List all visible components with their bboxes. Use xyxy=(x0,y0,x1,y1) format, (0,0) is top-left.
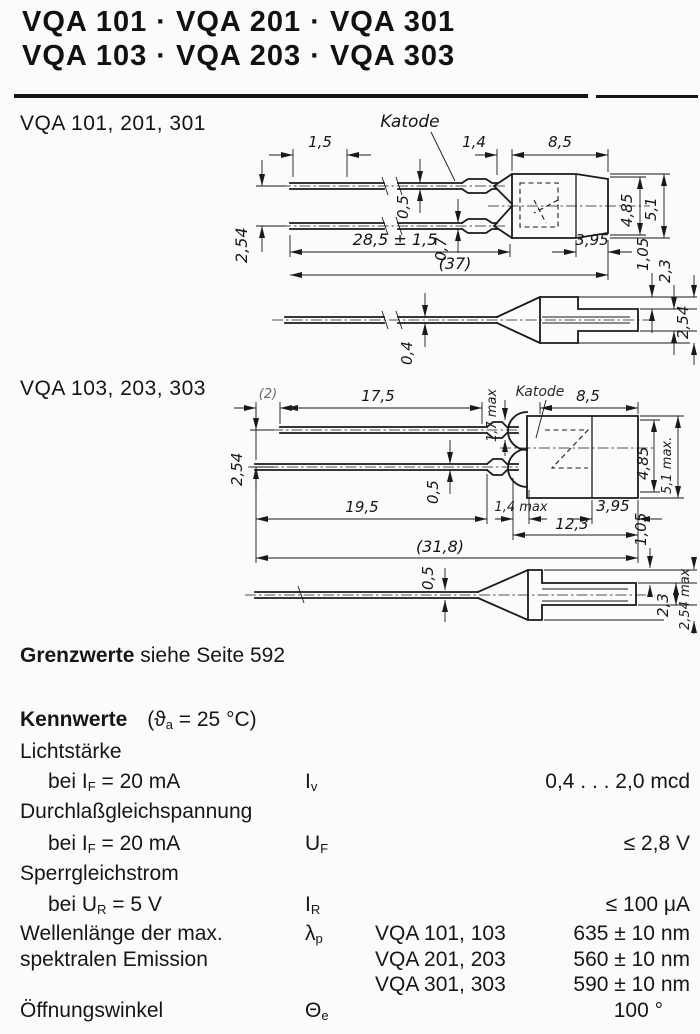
page-title-line1: VQA 101 · VQA 201 · VQA 301 xyxy=(22,6,455,39)
row2-label: Durchlaßgleichspannung xyxy=(20,800,252,824)
d2-dim-notch: 2,3 xyxy=(654,593,672,617)
d2-dim-body-total: 12,3 xyxy=(555,515,588,533)
d1-dim-flange: 1,4 xyxy=(462,133,486,151)
d2-dim-lead-thickness: 0,5 xyxy=(424,480,442,504)
d1-dim-body-length: 8,5 xyxy=(548,133,572,151)
d2-dimensions: (2) 17,5 1,7 max Katode 8,5 2,54 0,5 19,… xyxy=(228,384,684,563)
d2-dim-flange: 1,4 max xyxy=(494,500,547,515)
d1-dim-notch: 2,3 xyxy=(656,259,674,283)
kennwerte-heading-line: Kennwerte (ϑa = 25 °C) xyxy=(20,708,257,732)
d1-dim-dia-outer: 5,1 xyxy=(642,197,660,221)
page-title-line2: VQA 103 · VQA 203 · VQA 303 xyxy=(22,40,455,73)
d2-katode-label: Katode xyxy=(516,384,565,400)
row4-variant2-type: VQA 201, 203 xyxy=(375,948,506,972)
d2-dim-top-lead: 17,5 xyxy=(361,387,394,405)
row4-symbol: λp xyxy=(305,922,323,946)
d2-dim-lead-pitch: 2,54 xyxy=(228,453,246,486)
d1-katode-label: Katode xyxy=(380,112,439,132)
drawing2-figure: (2) 17,5 1,7 max Katode 8,5 2,54 0,5 19,… xyxy=(0,372,700,640)
row1-label: Lichtstärke xyxy=(20,740,122,764)
row2-condition: bei IF = 20 mA xyxy=(48,832,180,856)
header-divider-right xyxy=(596,95,698,98)
d2-dim-step: 1,05 xyxy=(632,513,650,546)
row4-variant1-value: 635 ± 10 nm xyxy=(573,922,690,946)
row4-variant2-value: 560 ± 10 nm xyxy=(573,948,690,972)
row3-condition: bei UR = 5 V xyxy=(48,893,162,917)
row3-symbol: IR xyxy=(305,893,320,917)
grenzwerte-label: Grenzwerte xyxy=(20,644,134,667)
d2-dim-side-max: 2,54 max xyxy=(678,568,693,630)
d2-dim-bottom-lead: 19,5 xyxy=(345,498,378,516)
d1-dim-front: 3,95 xyxy=(575,231,608,249)
d1-dim-lead-offset: 1,5 xyxy=(308,133,332,151)
kennwerte-condition: (ϑa = 25 °C) xyxy=(147,708,256,731)
datasheet-page: VQA 101 · VQA 201 · VQA 301 VQA 103 · VQ… xyxy=(0,0,700,1034)
d2-dim-dia-inner: 4,85 xyxy=(634,447,652,480)
d1-dim-side-lead: 0,4 xyxy=(398,341,416,365)
row4-variant1-type: VQA 101, 103 xyxy=(375,922,506,946)
row2-value: ≤ 2,8 V xyxy=(624,832,690,856)
grenzwerte-line: Grenzwerte siehe Seite 592 xyxy=(20,644,285,668)
d2-dim-dia-outer: 5,1 max. xyxy=(660,437,675,494)
grenzwerte-text: siehe Seite 592 xyxy=(140,644,285,667)
d2-dim-lead-offset: (2) xyxy=(259,387,277,402)
d2-dim-side-lead: 0,5 xyxy=(419,566,437,590)
d1-dim-dia-inner: 4,85 xyxy=(618,194,636,227)
d2-dim-front: 3,95 xyxy=(596,497,629,515)
d1-dim-lead-thickness-top: 0,5 xyxy=(394,195,412,219)
row1-condition: bei IF = 20 mA xyxy=(48,770,180,794)
row3-value: ≤ 100 μA xyxy=(606,893,690,917)
d1-dim-step: 1,05 xyxy=(634,238,652,271)
d1-dim-lead-length: 28,5 ± 1,5 xyxy=(353,230,438,249)
d1-dim-overall: (37) xyxy=(439,254,472,273)
d1-dim-lead-pitch: 2,54 xyxy=(232,227,251,263)
d1-side-view: 0,4 2,54 xyxy=(272,275,697,365)
row4-variant3-value: 590 ± 10 nm xyxy=(573,973,690,997)
d1-dimensions: 1,5 Katode 1,4 8,5 2,54 0,5 0,7 28,5 ± 1… xyxy=(232,112,674,355)
d2-side-view: 0,5 1,05 2,3 2,54 max xyxy=(245,513,697,634)
row4-label-line1: Wellenlänge der max. xyxy=(20,922,223,946)
d2-top-view-outline xyxy=(248,412,655,498)
row2-symbol: UF xyxy=(305,832,328,856)
row3-label: Sperrgleichstrom xyxy=(20,862,179,886)
d2-dim-overall: (31,8) xyxy=(416,537,464,556)
row4-label-line2: spektralen Emission xyxy=(20,948,208,972)
d2-dim-tip: 1,7 max xyxy=(485,389,500,442)
row1-value: 0,4 . . . 2,0 mcd xyxy=(545,770,690,794)
d2-dim-body-length: 8,5 xyxy=(576,387,600,405)
row1-symbol: Iv xyxy=(305,770,317,794)
kennwerte-heading: Kennwerte xyxy=(20,708,127,731)
header-divider xyxy=(14,94,588,98)
d1-dim-side-pitch: 2,54 xyxy=(674,306,692,339)
d1-top-view-outline xyxy=(280,174,650,238)
row5-value: 100 ° xyxy=(614,999,663,1023)
drawing1-figure: 1,5 Katode 1,4 8,5 2,54 0,5 0,7 28,5 ± 1… xyxy=(0,105,700,373)
row5-symbol: Θe xyxy=(305,999,329,1023)
row4-variant3-type: VQA 301, 303 xyxy=(375,973,506,997)
row5-label: Öffnungswinkel xyxy=(20,999,163,1023)
